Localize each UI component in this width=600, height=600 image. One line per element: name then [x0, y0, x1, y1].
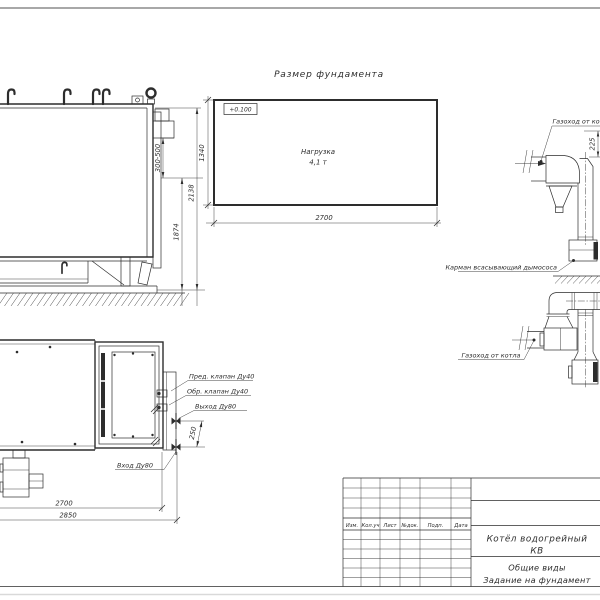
label-leader	[171, 381, 188, 392]
convective-section	[95, 342, 163, 448]
doc-type-line2: Задание на фундамент	[483, 575, 590, 585]
burner-assembly	[0, 450, 43, 497]
eye-base	[148, 99, 155, 104]
outlet-flange-symbol	[172, 413, 205, 429]
elbow-inner	[567, 310, 572, 315]
dim-text-plan-2700: 2700	[55, 500, 72, 508]
section-inner-frame	[99, 346, 159, 444]
bolt-dot	[132, 352, 134, 354]
tb-header-koluch: Кол.уч	[362, 523, 380, 529]
check-valve-label: Обр. клапан Ду40	[187, 388, 248, 396]
dim-nozzle-spacing: 250	[188, 421, 202, 447]
access-door	[112, 352, 155, 438]
flue-box-left-flange	[540, 333, 544, 346]
fastener-dot	[21, 441, 24, 444]
bottom-left-flange	[569, 366, 573, 378]
dim-text-2138: 2138	[188, 184, 196, 202]
flue-bottom-detail: Газоход от котла	[458, 293, 600, 389]
load-value: 4,1 т	[309, 159, 327, 167]
fastener-dot	[49, 346, 52, 349]
boiler-plan-view: Пред. клапан Ду40 Обр. клапан Ду40 Выход…	[0, 340, 254, 524]
stub-dot	[157, 392, 160, 395]
dim-flue-height-range: 300-500	[154, 138, 165, 178]
break-mark	[523, 150, 527, 173]
foundation-plan-title: Размер фундамента	[274, 70, 384, 80]
bolt-dot	[132, 435, 134, 437]
bolt-dot	[113, 434, 115, 436]
cyclone-cone	[549, 186, 572, 207]
label-leader	[164, 451, 177, 470]
elevation-mark-text: +0.100	[229, 107, 251, 114]
load-label: Нагрузка	[301, 148, 335, 156]
dim-text-2850: 2850	[59, 512, 76, 520]
dim-overall-length: 2850	[0, 512, 180, 524]
tb-header-data: Дата	[453, 523, 467, 529]
dim-height-to-flue: 1874	[173, 178, 184, 290]
suction-pocket-box	[569, 240, 597, 261]
dim-foundation-length: 2700	[206, 207, 441, 227]
skid-hook-icon	[62, 262, 67, 273]
flue-from-boiler-label-top: Газоход от котла	[553, 118, 600, 126]
sheet-frame	[0, 8, 600, 595]
dim-flue-225: 225	[584, 131, 600, 157]
boiler-body-outline	[0, 104, 153, 257]
transition-left	[545, 317, 549, 329]
foundation-plan: Размер фундамента +0.100 Нагрузка 4,1 т …	[198, 70, 441, 227]
tb-header-ndok: №док.	[401, 523, 419, 529]
bolt-dot	[151, 354, 153, 356]
flue-top-detail: Газоход от котла Карман всасывающий дымо…	[445, 118, 600, 284]
cone-outlet-stub	[556, 207, 564, 213]
flue-stub-upper	[155, 109, 169, 121]
label-leader	[558, 261, 573, 272]
leader-dot	[533, 339, 536, 342]
inlet-flange-symbol	[172, 439, 206, 455]
mounting-plate	[132, 96, 143, 104]
flue-stub-box	[153, 121, 174, 138]
break-mark	[519, 326, 523, 350]
dim-text-250: 250	[188, 426, 198, 440]
dim-foundation-width: 1340	[198, 96, 213, 209]
slot-bar	[101, 353, 105, 437]
bottom-transition-right	[593, 352, 597, 360]
bottom-flange-black	[593, 362, 598, 382]
dim-text-2700: 2700	[315, 214, 332, 222]
lifting-hook-icon	[8, 90, 110, 105]
support-brace	[92, 261, 124, 285]
support-foot	[138, 262, 152, 285]
label-leader	[179, 411, 195, 419]
dim-text-300-500: 300-500	[154, 144, 162, 172]
inlet-label: Вход Ду80	[117, 462, 153, 470]
dim-body-length: 2700	[0, 500, 165, 512]
drawing-canvas: 300-500 1874 2138 Размер фундамента +0.1…	[0, 0, 600, 600]
lifting-eye-icon	[147, 89, 156, 98]
bolt-dot	[151, 434, 153, 436]
fan-volute	[546, 156, 580, 184]
ground-hatch	[0, 293, 189, 306]
stub-dot	[157, 406, 160, 409]
fastener-dot	[16, 351, 19, 354]
tb-header-podp: Подп.	[428, 523, 444, 529]
ground-hatch	[555, 276, 600, 284]
label-leader	[524, 341, 534, 360]
flue-from-boiler-label-bottom: Газоход от котла	[461, 352, 520, 360]
rear-panel	[153, 112, 161, 268]
label-leader	[169, 396, 186, 406]
boiler-side-view: 300-500 1874 2138	[0, 89, 205, 307]
duct-elbow-chamfer	[580, 159, 594, 184]
safety-valve-label: Пред. клапан Ду40	[189, 373, 254, 381]
bottom-transition-left	[574, 352, 578, 360]
title-block: Изм. Кол.уч Лист №док. Подп. Дата Котёл …	[343, 478, 600, 587]
transition-right	[567, 317, 573, 329]
break-mark	[525, 326, 529, 350]
break-mark	[529, 150, 533, 173]
tb-header-list: Лист	[382, 523, 397, 529]
dim-text-1340: 1340	[198, 144, 206, 161]
tb-header-izm: Изм.	[346, 523, 358, 529]
leader-dot	[572, 259, 575, 262]
outlet-label: Выход Ду80	[195, 403, 236, 411]
dim-total-height: 2138	[188, 108, 199, 290]
bolt-dot	[113, 354, 115, 356]
dim-text-1874: 1874	[173, 223, 181, 240]
elbow-outer	[549, 293, 572, 315]
product-name-line1: Котёл водогрейный	[487, 535, 588, 545]
fastener-dot	[74, 443, 77, 446]
dim-text-225: 225	[589, 138, 597, 151]
doc-type-line1: Общие виды	[508, 563, 566, 573]
plate-hole	[136, 98, 140, 102]
suction-pocket-label: Карман всасывающий дымососа	[445, 264, 557, 272]
pocket-flange-black	[594, 242, 599, 260]
product-name-line2: КВ	[530, 547, 543, 557]
